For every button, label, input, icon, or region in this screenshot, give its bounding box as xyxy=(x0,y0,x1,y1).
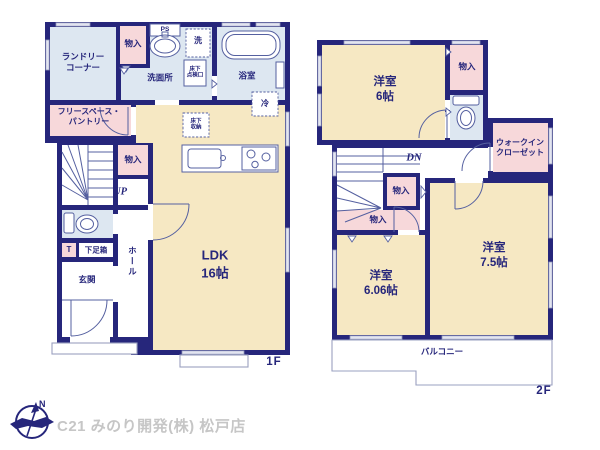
compass-north-icon: N xyxy=(8,396,56,446)
opening xyxy=(455,178,483,183)
floor2-label: 2F xyxy=(536,384,551,398)
shoebox-label: 下足箱 xyxy=(85,245,108,254)
room-bath xyxy=(217,27,285,100)
opening xyxy=(113,214,118,234)
room-toilet-2f xyxy=(450,95,483,140)
opening xyxy=(113,266,118,302)
floor1-label: 1F xyxy=(266,355,281,369)
closet-1f-a-label: 物入 xyxy=(124,39,141,50)
freespace-label: フリースペース・ パントリー xyxy=(58,107,121,127)
floorplan-page: ランドリー コーナー 物入 PS 洗面所 洗 床下 点検口 浴室 冷 フリースペ… xyxy=(0,0,600,450)
hall-label: ホール xyxy=(127,246,138,278)
closet-1f-b-label: 物入 xyxy=(124,155,141,166)
opening xyxy=(445,112,450,138)
up-label: UP xyxy=(113,185,127,198)
wic-label: ウォークイン クローゼット xyxy=(496,138,544,158)
room606-label: 洋室 6.06帖 xyxy=(364,269,398,299)
opening xyxy=(488,147,493,171)
room-ldk xyxy=(153,105,285,350)
balcony-label: バルコニー xyxy=(421,347,463,358)
washer-label: 洗 xyxy=(194,36,202,46)
opening xyxy=(212,76,217,96)
opening xyxy=(398,230,419,235)
ldk-label: LDK 16帖 xyxy=(201,246,228,281)
opening xyxy=(148,204,153,240)
opening-front-door xyxy=(70,337,110,343)
opening xyxy=(131,107,136,135)
closet-2f-b-label: 物入 xyxy=(392,186,409,197)
fridge-label: 冷 xyxy=(261,99,269,109)
ps-label: PS xyxy=(161,26,170,34)
closet-2f-a-label: 物入 xyxy=(458,62,475,73)
opening xyxy=(155,100,179,105)
room-toilet-1f xyxy=(62,210,113,238)
room-ldk-kitchen-ext xyxy=(136,105,153,143)
entrance-label: 玄関 xyxy=(78,275,95,286)
closet-2f-c-label: 物入 xyxy=(369,215,386,226)
bath-label: 浴室 xyxy=(238,71,255,82)
washroom-label: 洗面所 xyxy=(147,73,173,84)
dn-label: DN xyxy=(406,151,421,164)
room75-label: 洋室 7.5帖 xyxy=(480,241,508,271)
company-name: C21 みのり開発(株) 松戸店 xyxy=(57,415,246,436)
stairs-1f xyxy=(62,145,113,205)
room6-label: 洋室 6帖 xyxy=(374,75,397,105)
underfloor-label: 床下 収納 xyxy=(190,119,201,132)
t-label: T xyxy=(67,245,72,255)
compass-n-label: N xyxy=(39,399,46,409)
inspection-label: 床下 点検口 xyxy=(187,67,204,80)
laundry-label: ランドリー コーナー xyxy=(62,51,105,72)
opening xyxy=(445,100,450,110)
room-entrance xyxy=(62,262,113,337)
